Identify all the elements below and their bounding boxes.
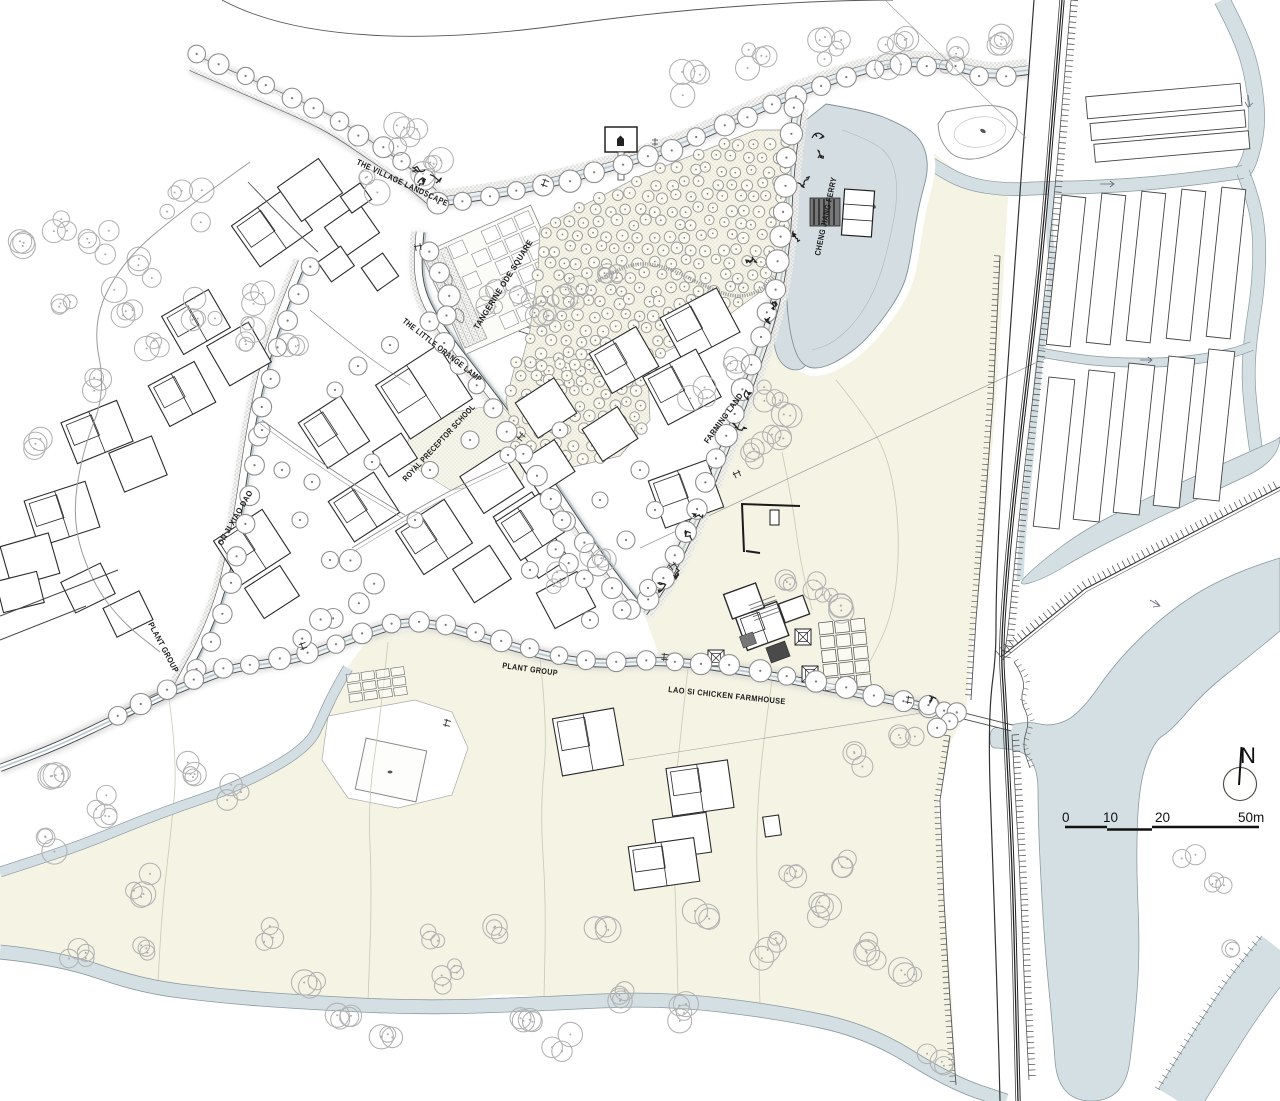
svg-text:50m: 50m xyxy=(1238,810,1264,825)
svg-text:20: 20 xyxy=(1155,810,1170,825)
svg-text:N: N xyxy=(1240,743,1256,768)
svg-text:10: 10 xyxy=(1103,810,1118,825)
svg-text:0: 0 xyxy=(1062,810,1070,825)
